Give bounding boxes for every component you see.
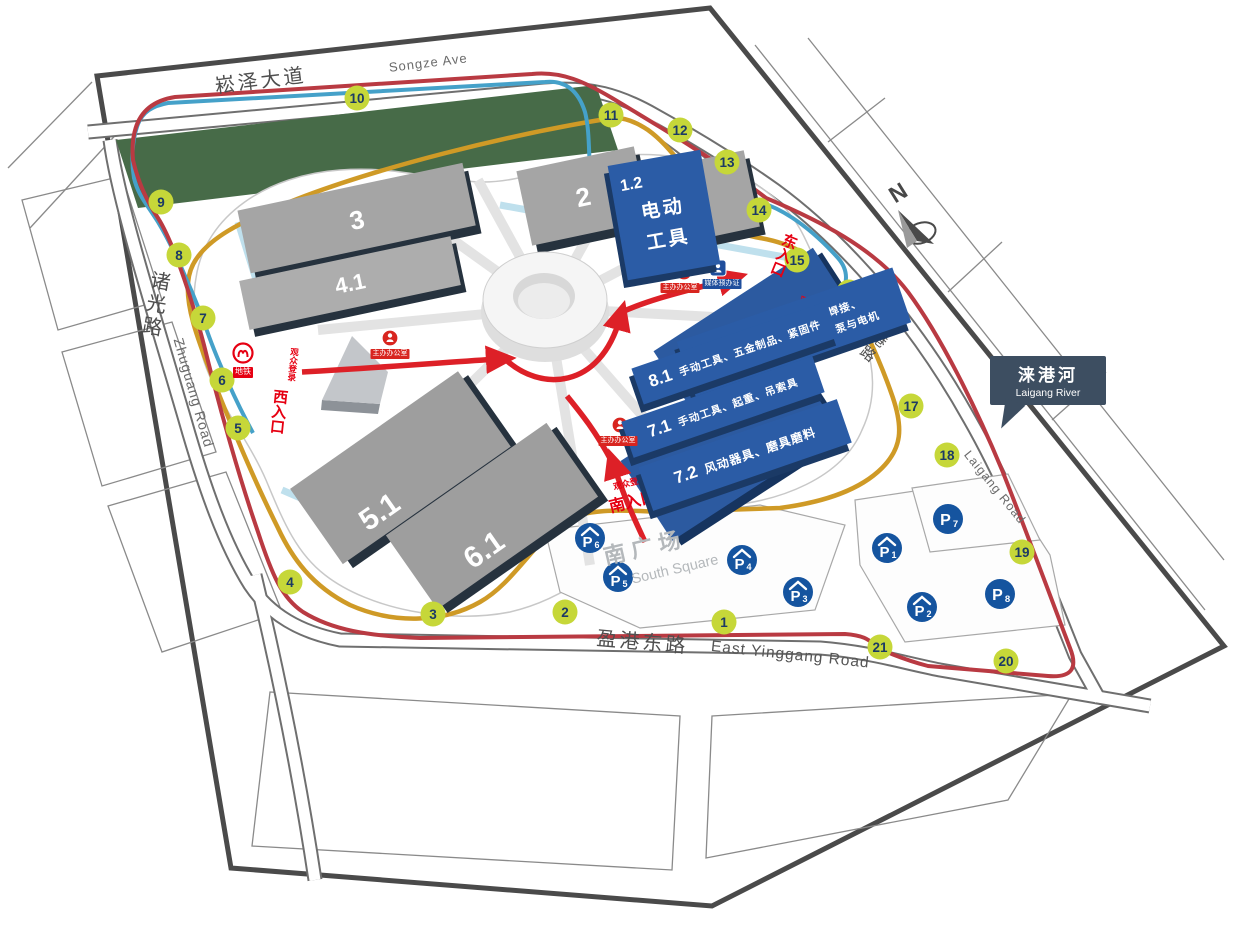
route-marker-21: 21	[868, 635, 893, 660]
svg-text:8: 8	[1005, 594, 1010, 605]
svg-text:7: 7	[199, 311, 207, 326]
route-marker-7: 7	[191, 306, 216, 331]
svg-text:19: 19	[1014, 545, 1029, 560]
laigang-river-sign: 涞港河 Laigang River	[990, 356, 1106, 405]
organizer-office-label-south: 主办办公室	[599, 436, 638, 446]
laigang-river-sign-en: Laigang River	[998, 387, 1098, 399]
media-registration-label: 媒体预办证	[703, 279, 742, 289]
svg-text:1: 1	[720, 615, 728, 630]
svg-text:3: 3	[802, 594, 807, 604]
route-marker-17: 17	[899, 394, 924, 419]
metro-label: 地铁	[233, 367, 253, 378]
route-marker-19: 19	[1010, 540, 1035, 565]
route-marker-18: 18	[935, 443, 960, 468]
svg-text:4: 4	[286, 575, 294, 590]
route-marker-12: 12	[668, 118, 693, 143]
svg-text:P: P	[610, 573, 620, 590]
svg-text:13: 13	[719, 155, 735, 170]
svg-text:11: 11	[604, 108, 619, 123]
svg-text:5: 5	[234, 421, 242, 436]
svg-text:4: 4	[746, 562, 751, 572]
parking-p8-icon: P8	[985, 579, 1015, 609]
hall-7-1-number: 7.1	[645, 416, 674, 443]
svg-text:P: P	[582, 534, 592, 551]
route-marker-8: 8	[167, 243, 192, 268]
svg-text:2: 2	[926, 609, 931, 619]
venue-traffic-map: 3 4.1 2 1 5.1 6.1	[0, 0, 1236, 943]
route-marker-13: 13	[715, 150, 740, 175]
svg-text:P: P	[790, 588, 800, 605]
svg-text:12: 12	[672, 123, 687, 138]
svg-text:9: 9	[157, 195, 165, 210]
svg-text:7: 7	[953, 519, 958, 530]
hall-8-1-number: 8.1	[646, 365, 675, 392]
metro-station-icon	[234, 344, 253, 363]
route-marker-14: 14	[747, 198, 772, 223]
svg-text:14: 14	[751, 203, 767, 218]
compass-rose-icon	[898, 210, 939, 248]
parking-p3-icon: P3	[783, 577, 813, 607]
route-marker-1: 1	[712, 610, 737, 635]
hall-1-2-banner: 1.2 电动 工具	[608, 150, 721, 281]
organizer-office-label-west: 主办办公室	[371, 349, 410, 359]
route-marker-2: 2	[553, 600, 578, 625]
parking-p4-icon: P4	[727, 545, 757, 575]
hall-1-2-line1: 电动	[639, 190, 687, 224]
route-marker-11: 11	[599, 103, 624, 128]
svg-text:21: 21	[872, 640, 888, 655]
parking-p6-icon: P6	[575, 523, 605, 553]
parking-p7-icon: P7	[933, 504, 963, 534]
svg-text:8: 8	[175, 248, 183, 263]
hall-1-2-number: 1.2	[619, 174, 644, 196]
map-canvas: 3 4.1 2 1 5.1 6.1	[0, 0, 1236, 943]
svg-text:20: 20	[998, 654, 1013, 669]
route-marker-20: 20	[994, 649, 1019, 674]
svg-text:6: 6	[594, 540, 599, 550]
svg-text:17: 17	[903, 399, 918, 414]
route-marker-10: 10	[345, 86, 370, 111]
hall-7-2-number: 7.2	[671, 462, 700, 489]
svg-text:1: 1	[891, 550, 896, 560]
svg-text:P: P	[940, 512, 951, 529]
route-marker-4: 4	[278, 570, 303, 595]
svg-text:5: 5	[622, 579, 627, 589]
svg-text:6: 6	[218, 373, 226, 388]
laigang-river-sign-zh: 涞港河	[998, 361, 1098, 386]
parking-p1-icon: P1	[872, 533, 902, 563]
svg-text:2: 2	[561, 605, 569, 620]
svg-text:P: P	[992, 587, 1003, 604]
organizer-office-label-east: 主办办公室	[661, 283, 700, 293]
parking-p2-icon: P2	[907, 592, 937, 622]
route-marker-5: 5	[226, 416, 251, 441]
svg-text:3: 3	[429, 607, 437, 622]
central-ring-building	[481, 252, 609, 362]
route-marker-6: 6	[210, 368, 235, 393]
svg-text:P: P	[879, 544, 889, 561]
svg-text:P: P	[914, 603, 924, 620]
svg-text:10: 10	[349, 91, 364, 106]
route-marker-3: 3	[421, 602, 446, 627]
route-marker-9: 9	[149, 190, 174, 215]
hall-1-2-line2: 工具	[644, 221, 692, 255]
svg-text:P: P	[734, 556, 744, 573]
svg-text:18: 18	[939, 448, 955, 463]
organizer-office-icon-west	[382, 330, 398, 346]
